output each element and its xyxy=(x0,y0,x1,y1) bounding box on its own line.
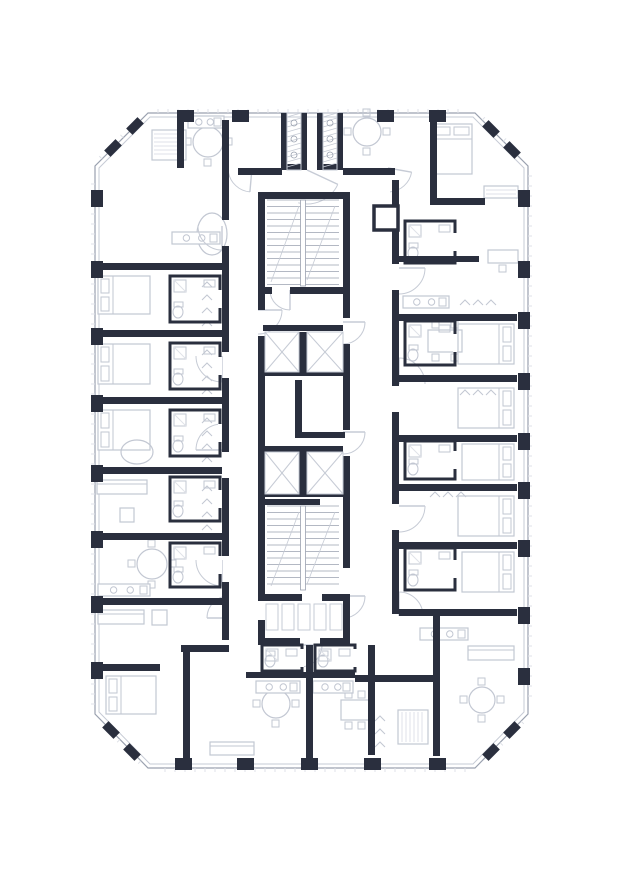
sofa-body xyxy=(210,742,254,755)
interior-wall xyxy=(355,675,437,682)
duct-box xyxy=(374,206,398,230)
interior-wall xyxy=(320,638,350,645)
interior-wall xyxy=(301,113,307,170)
facade-pier xyxy=(91,596,103,613)
interior-wall xyxy=(317,113,323,170)
elevator-shaft xyxy=(307,332,343,372)
floor-plan-svg xyxy=(0,0,621,880)
interior-wall xyxy=(222,246,229,352)
bathroom-door-gap xyxy=(218,357,222,375)
interior-wall xyxy=(299,452,307,494)
stair-stringer xyxy=(301,200,306,286)
interior-wall xyxy=(246,672,355,678)
elevator-shaft xyxy=(307,452,343,494)
bed xyxy=(458,388,514,428)
bathroom-door-gap xyxy=(218,556,222,574)
facade-pier xyxy=(518,433,530,450)
interior-wall xyxy=(295,380,302,438)
bed xyxy=(98,344,150,384)
bathroom-door-gap xyxy=(453,451,457,469)
facade-pier xyxy=(175,758,192,770)
bed xyxy=(462,552,514,592)
bed xyxy=(106,676,156,714)
interior-wall xyxy=(238,168,282,175)
bathroom-door-gap xyxy=(300,649,304,667)
kitchen-counter xyxy=(256,681,300,693)
interior-wall xyxy=(258,287,272,294)
interior-wall xyxy=(399,375,517,382)
sofa xyxy=(210,742,254,755)
bed-frame xyxy=(98,344,150,384)
interior-wall xyxy=(95,397,222,404)
interior-wall xyxy=(263,446,343,452)
kitchen-counter xyxy=(98,584,150,596)
interior-wall xyxy=(263,325,343,331)
interior-wall xyxy=(399,435,517,442)
interior-wall xyxy=(258,638,300,645)
facade-pier xyxy=(91,261,103,278)
bed xyxy=(432,124,472,174)
bed xyxy=(458,496,514,536)
bed xyxy=(98,410,150,450)
facade-pier xyxy=(518,482,530,499)
bed xyxy=(462,444,514,480)
interior-wall xyxy=(368,645,375,755)
interior-wall xyxy=(343,192,350,318)
interior-wall xyxy=(222,582,229,640)
facade-pier xyxy=(91,465,103,482)
interior-wall xyxy=(95,533,222,540)
facade-pier xyxy=(429,758,446,770)
interior-wall xyxy=(222,120,229,220)
facade-pier xyxy=(91,190,103,207)
facade-pier xyxy=(177,110,194,122)
elevator-shaft xyxy=(265,452,299,494)
bed xyxy=(458,324,514,364)
kitchen-counter xyxy=(403,296,449,308)
facade-pier xyxy=(232,110,249,122)
interior-wall xyxy=(95,598,222,605)
floor-plan-page xyxy=(0,0,621,880)
interior-wall xyxy=(263,499,320,505)
interior-wall xyxy=(258,192,350,199)
interior-wall xyxy=(433,616,440,756)
interior-wall xyxy=(430,198,485,205)
bed-frame xyxy=(106,676,156,714)
bathroom-door-gap xyxy=(453,233,457,251)
interior-wall xyxy=(95,664,160,671)
facade-pier xyxy=(377,110,394,122)
bathroom-door-gap xyxy=(218,290,222,308)
elevator-shaft xyxy=(265,332,299,372)
interior-wall xyxy=(430,113,437,205)
interior-wall xyxy=(299,332,307,374)
bed-frame xyxy=(458,324,514,364)
facade-pier xyxy=(518,607,530,624)
wardrobe xyxy=(398,710,428,744)
bed-frame xyxy=(458,496,514,536)
interior-wall xyxy=(392,530,399,614)
sofa-body xyxy=(468,646,514,660)
interior-wall xyxy=(399,542,517,549)
stair-stringer xyxy=(301,506,306,590)
bathroom-door-gap xyxy=(218,490,222,508)
bed-frame xyxy=(98,410,150,450)
interior-wall xyxy=(343,168,395,175)
facade-pier xyxy=(518,261,530,278)
duct-shaft xyxy=(374,206,398,230)
interior-wall xyxy=(399,484,517,491)
facade-pier xyxy=(518,190,530,207)
bed-frame xyxy=(458,388,514,428)
interior-wall xyxy=(258,594,302,601)
interior-wall xyxy=(399,314,517,321)
interior-wall xyxy=(295,432,345,438)
bed-frame xyxy=(462,444,514,480)
interior-wall xyxy=(222,478,229,556)
sofa xyxy=(98,610,144,624)
interior-wall xyxy=(183,652,190,758)
facade-pier xyxy=(237,758,254,770)
interior-wall xyxy=(399,256,479,262)
facade-pier xyxy=(301,758,318,770)
bathroom-door-gap xyxy=(453,560,457,578)
facade-pier xyxy=(91,328,103,345)
facade-pier xyxy=(91,531,103,548)
interior-wall xyxy=(343,456,350,568)
interior-wall xyxy=(343,344,350,430)
wardrobe-body xyxy=(484,186,518,198)
bathroom-door-gap xyxy=(453,334,457,352)
facade-pier xyxy=(91,662,103,679)
interior-wall xyxy=(322,594,350,601)
wardrobe xyxy=(484,186,518,198)
interior-wall xyxy=(306,645,313,758)
interior-wall xyxy=(399,609,517,616)
interior-wall xyxy=(281,113,287,170)
kitchen-counter xyxy=(172,232,220,244)
interior-wall xyxy=(95,467,222,474)
kitchen-counter xyxy=(313,681,353,693)
interior-wall xyxy=(392,290,399,386)
sofa xyxy=(97,480,147,494)
sofa xyxy=(468,646,514,660)
bed-frame xyxy=(98,276,150,314)
facade-pier xyxy=(518,668,530,685)
kitchen-counter xyxy=(420,628,468,640)
interior-wall xyxy=(392,412,399,504)
facade-pier xyxy=(91,395,103,412)
interior-wall xyxy=(290,287,350,294)
bed-frame xyxy=(462,552,514,592)
bathroom-door-gap xyxy=(218,424,222,442)
bathroom-door-gap xyxy=(353,649,357,667)
interior-wall xyxy=(95,330,222,337)
interior-wall xyxy=(181,645,229,652)
interior-wall xyxy=(222,378,229,452)
facade-pier xyxy=(518,373,530,390)
facade-pier xyxy=(364,758,381,770)
bed xyxy=(98,276,150,314)
interior-wall xyxy=(337,113,343,170)
sofa-body xyxy=(98,610,144,624)
sofa-body xyxy=(97,480,147,494)
interior-wall xyxy=(95,263,222,270)
bed-frame xyxy=(432,124,472,174)
facade-pier xyxy=(429,110,446,122)
facade-pier xyxy=(518,312,530,329)
facade-pier xyxy=(518,540,530,557)
interior-wall xyxy=(343,594,350,645)
